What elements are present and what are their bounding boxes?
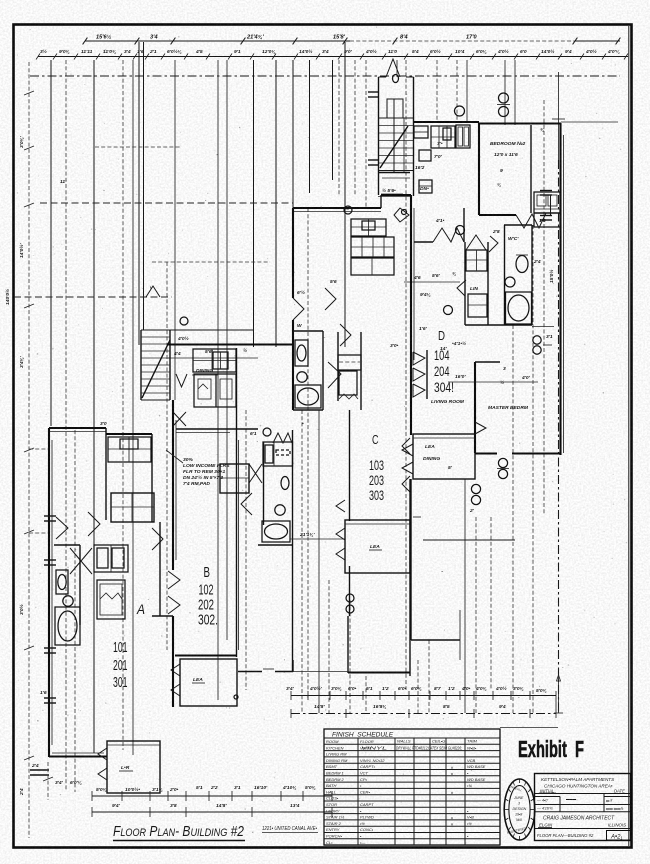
svg-text:140'0½: 140'0½	[4, 289, 11, 305]
